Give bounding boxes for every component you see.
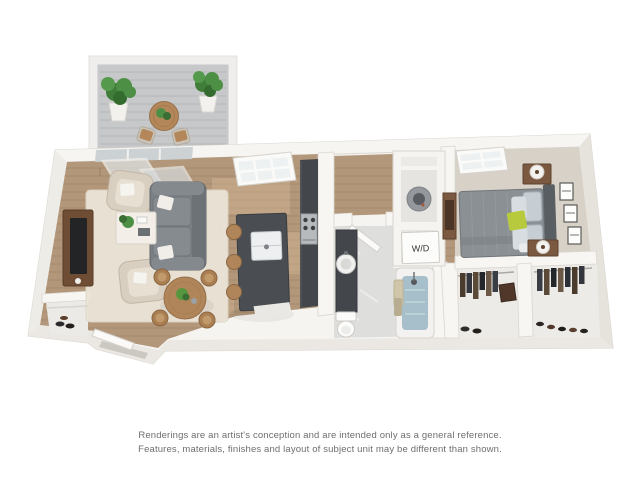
nightstand-top <box>523 164 551 184</box>
kitchen-bath-wall <box>318 152 334 316</box>
toilet <box>336 312 356 337</box>
coffee-table <box>116 212 156 244</box>
hanging-clothes <box>537 266 585 295</box>
bathtub <box>394 268 434 338</box>
disclaimer-line-2: Features, materials, finishes and layout… <box>0 443 640 457</box>
washer-dryer-label: W/D <box>412 243 430 254</box>
sofa <box>150 182 206 270</box>
armchair-top <box>105 169 154 215</box>
bedroom-window <box>456 147 508 174</box>
storage-box <box>499 283 516 302</box>
range <box>301 214 317 244</box>
utility-closet: W/D <box>393 151 445 266</box>
shoes <box>473 329 482 334</box>
kitchen-island <box>236 213 292 320</box>
shoes <box>56 322 65 327</box>
nightstand-bottom <box>528 240 558 256</box>
floorplan-page: W/D <box>0 0 640 480</box>
living-room <box>63 169 228 328</box>
tv <box>70 218 87 274</box>
faucet <box>344 251 348 255</box>
throw-pillow <box>157 245 174 260</box>
bar-stools <box>227 225 242 300</box>
washer-dryer: W/D <box>401 231 439 263</box>
living-room-window <box>233 152 296 186</box>
shoes <box>60 316 68 320</box>
towel <box>394 298 402 316</box>
shoes <box>66 324 75 329</box>
water-heater <box>407 187 431 211</box>
shoes <box>461 327 470 332</box>
bistro-chair-right <box>171 127 190 145</box>
disclaimer-line-1: Renderings are an artist's conception an… <box>0 429 640 443</box>
floorplan-rendering: W/D <box>0 0 640 480</box>
accent-pillow <box>507 210 528 231</box>
closet-divider-wall <box>517 263 533 337</box>
bath-top-wall-left <box>334 213 352 227</box>
disclaimer: Renderings are an artist's conception an… <box>0 429 640 456</box>
bistro-table <box>150 102 179 131</box>
tv-console <box>63 210 93 286</box>
balcony <box>89 56 237 158</box>
vanity <box>336 230 357 312</box>
